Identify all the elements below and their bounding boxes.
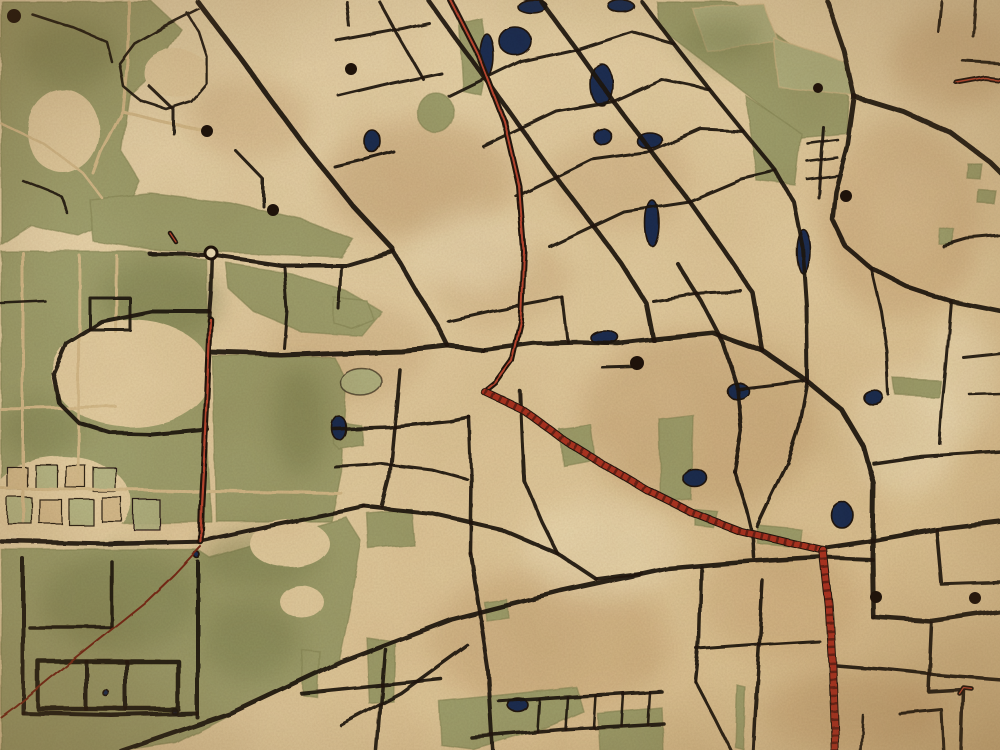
map-canvas — [0, 0, 1000, 750]
city-map-artwork — [0, 0, 1000, 750]
vignette-overlay — [0, 0, 1000, 750]
